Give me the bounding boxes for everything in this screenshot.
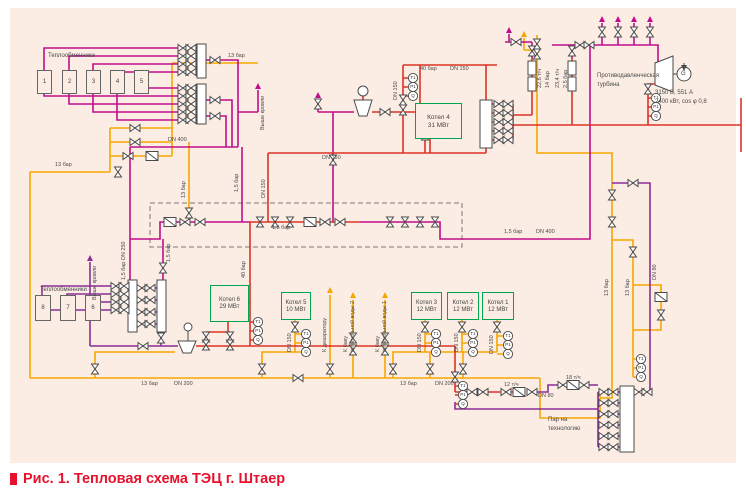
gauge-q: Q <box>253 338 263 343</box>
gauge-q: Q <box>636 375 646 380</box>
pipe-label-13bar-v: 13 бар <box>605 279 611 296</box>
hx-left-title: Теплообменники <box>40 287 87 293</box>
gauge-p1: Р1 <box>408 85 418 90</box>
gauge-p1: Р1 <box>636 366 646 371</box>
pipe-label-15bar-v: 1,5 бар <box>235 174 241 192</box>
gauge-q: Q <box>301 350 311 355</box>
pipe-label-13bar-v: 13 бар <box>626 279 632 296</box>
pipe-label-13bar: 13 бар <box>400 382 417 388</box>
hx-unit-2: 2 <box>62 70 77 94</box>
gauge-t1: Т1 <box>458 384 468 389</box>
boiler-5: Котел 510 МВт <box>281 292 311 320</box>
hx-unit-5: 5 <box>134 70 149 94</box>
turbine-spec-2: 2400 кВт, cos φ 0,8 <box>655 99 707 105</box>
boiler-6: Котел 629 МВт <box>210 285 249 322</box>
pipe-label-dn150-v: DN 150 <box>262 179 268 198</box>
turbine-label-1: Противодавленческая <box>597 73 659 79</box>
gauge-q: Q <box>458 402 468 407</box>
pipe-label-40bar-v: 40 бар <box>242 261 248 278</box>
pipe-label-dn400: DN 400 <box>168 138 187 144</box>
gauge-t1: Т1 <box>503 334 513 339</box>
to-deaerator-label: К деаэратору <box>323 318 329 352</box>
gauge-p1: Р1 <box>503 343 513 348</box>
hx-unit-8: 8 <box>35 295 51 321</box>
feed-tank2-label-1: К баку <box>344 336 350 352</box>
pipe-label-15bar-dn250-v: 1,5 бар DN 250 <box>122 242 128 281</box>
gauge-p1: Р1 <box>301 341 311 346</box>
gauge-t1: Т1 <box>431 332 441 337</box>
pipe-label-dn150: DN 150 <box>322 156 341 162</box>
hx-unit-4: 4 <box>110 70 125 94</box>
gauge-t1: Т1 <box>253 320 263 325</box>
hx-top-title: Теплообменники <box>48 53 95 59</box>
gauge-p1: Р1 <box>468 341 478 346</box>
pipe-label-dn80-v: DN 80 <box>653 264 659 280</box>
steam-to-process-label-1: Пар на <box>548 417 567 423</box>
pipe-label-40bar: 40 бар <box>420 67 437 73</box>
gauge-q: Q <box>503 352 513 357</box>
pipe-label-dn150-v: DN 150 <box>490 335 496 354</box>
gauge-t1: Т1 <box>408 76 418 81</box>
gauge-p1: Р1 <box>651 105 661 110</box>
pipe-label-dn150-v: DN 150 <box>288 333 294 352</box>
figure-caption: Рис. 1. Тепловая схема ТЭЦ г. Штаер <box>10 471 285 487</box>
boiler-3: Котел 312 МВт <box>411 292 442 320</box>
gauge-t1: Т1 <box>301 332 311 337</box>
pipe-label-234tph-v: 23,4 т/ч <box>556 69 562 88</box>
pipe-label-18tph: 18 т/ч <box>566 376 581 382</box>
pipe-label-dn150: DN 150 <box>450 67 469 73</box>
pipe-label-dn80: DN 80 <box>538 394 554 400</box>
pipe-label-dn150-v: DN 150 <box>455 333 461 352</box>
boiler4-header <box>480 100 492 148</box>
feed-tank1-label-2: питательной воды 1 <box>383 301 389 352</box>
pipe-label-dn150-v: DN 150 <box>418 333 424 352</box>
gauge-p1: Р1 <box>253 329 263 334</box>
gauge-q: Q <box>468 350 478 355</box>
boiler-2: Котел 212 МВт <box>447 292 479 320</box>
pipe-label-15bar-v: 1,5 бар <box>167 244 173 262</box>
steam-header-top-2 <box>197 84 206 124</box>
pipe-label-13bar: 13 бар <box>141 382 158 388</box>
gauge-q: Q <box>651 114 661 119</box>
pipe-label-25bar-v: 2,5 бар <box>564 70 570 88</box>
flow-arrows <box>87 16 687 298</box>
pipe-label-12tph: 12 т/ч <box>504 383 519 389</box>
caption-text: Рис. 1. Тепловая схема ТЭЦ г. Штаер <box>23 471 285 487</box>
steam-header-top-1 <box>197 44 206 78</box>
pipe-label-dn400: DN 400 <box>536 230 555 236</box>
hx-unit-1: 1 <box>37 70 52 94</box>
gauge-t1: Т1 <box>468 332 478 337</box>
pipe-label-15bar: 1,5 бар <box>504 230 522 236</box>
gauge-dial <box>184 323 192 331</box>
feed-tank2-label-2: питательной воды 2 <box>351 301 357 352</box>
pipe-label-dn200: DN 200 <box>435 382 454 388</box>
above-roof-label: Выше кровли <box>93 266 99 300</box>
generator-letter: G <box>681 71 686 77</box>
gauge-q: Q <box>408 94 418 99</box>
pipe-label-15bar: 1,5 бар <box>272 226 290 232</box>
gauge-t1: Т1 <box>636 357 646 362</box>
pipe-label-226tph-v: 22,6 т/ч <box>538 69 544 88</box>
turbine-label-2: турбина <box>597 82 620 88</box>
gauge-p1: Р1 <box>458 393 468 398</box>
gauge-q: Q <box>431 350 441 355</box>
gauge-t1: Т1 <box>651 96 661 101</box>
hx-unit-3: 3 <box>86 70 101 94</box>
blowdown-vessel-left <box>178 341 196 353</box>
above-roof-label: Выше кровли <box>261 96 267 130</box>
steam-header-left-2 <box>157 280 166 332</box>
pipe-label-dn200: DN 200 <box>174 382 193 388</box>
process-steam-header <box>620 386 634 452</box>
pipe-label-13bar: 13 бар <box>228 54 245 60</box>
hx-unit-7: 7 <box>60 295 76 321</box>
makeup-vessel-top <box>354 100 372 116</box>
boiler-4: Котел 431 МВт <box>415 103 462 139</box>
feed-tank1-label-1: К баку <box>376 336 382 352</box>
steam-to-process-label-2: технологию <box>548 426 580 432</box>
scheme-figure: Теплообменники 1 2 3 4 5 Теплообменники … <box>0 0 746 501</box>
pipe-label-dn150-v: DN 150 <box>394 81 400 100</box>
gauge-dial <box>358 86 368 96</box>
gauge-p1: Р1 <box>431 341 441 346</box>
pipe-label-13bar-v: 13 бар <box>182 181 188 198</box>
caption-bullet-icon <box>10 473 17 485</box>
boiler-1: Котел 112 МВт <box>482 292 514 320</box>
pipe-label-14bar-v: 14 бар <box>546 71 552 88</box>
pipe-label-13bar: 13 бар <box>55 163 72 169</box>
